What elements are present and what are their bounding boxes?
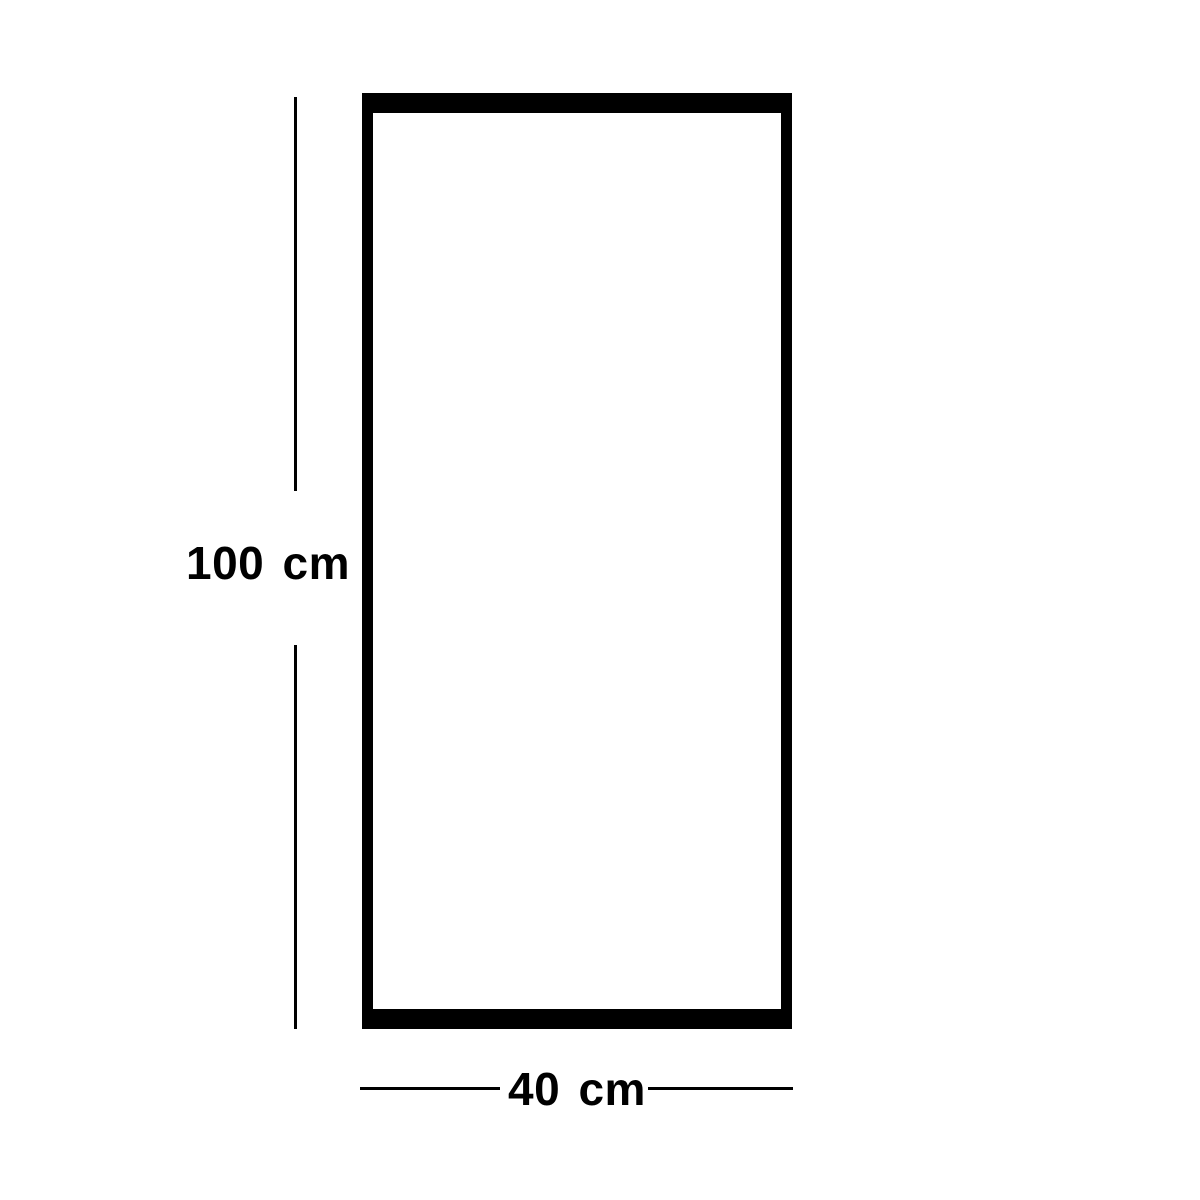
width-dimension-label: 40 cm [508, 1066, 646, 1112]
width-dimension-line-right [648, 1087, 793, 1090]
rectangle-outline [362, 93, 792, 1029]
width-dimension-line-left [360, 1087, 500, 1090]
height-dimension-line-upper [294, 97, 297, 491]
height-dimension-line-lower [294, 645, 297, 1029]
dimension-diagram: 100 cm 40 cm [0, 0, 1200, 1200]
height-dimension-label: 100 cm [186, 540, 350, 586]
